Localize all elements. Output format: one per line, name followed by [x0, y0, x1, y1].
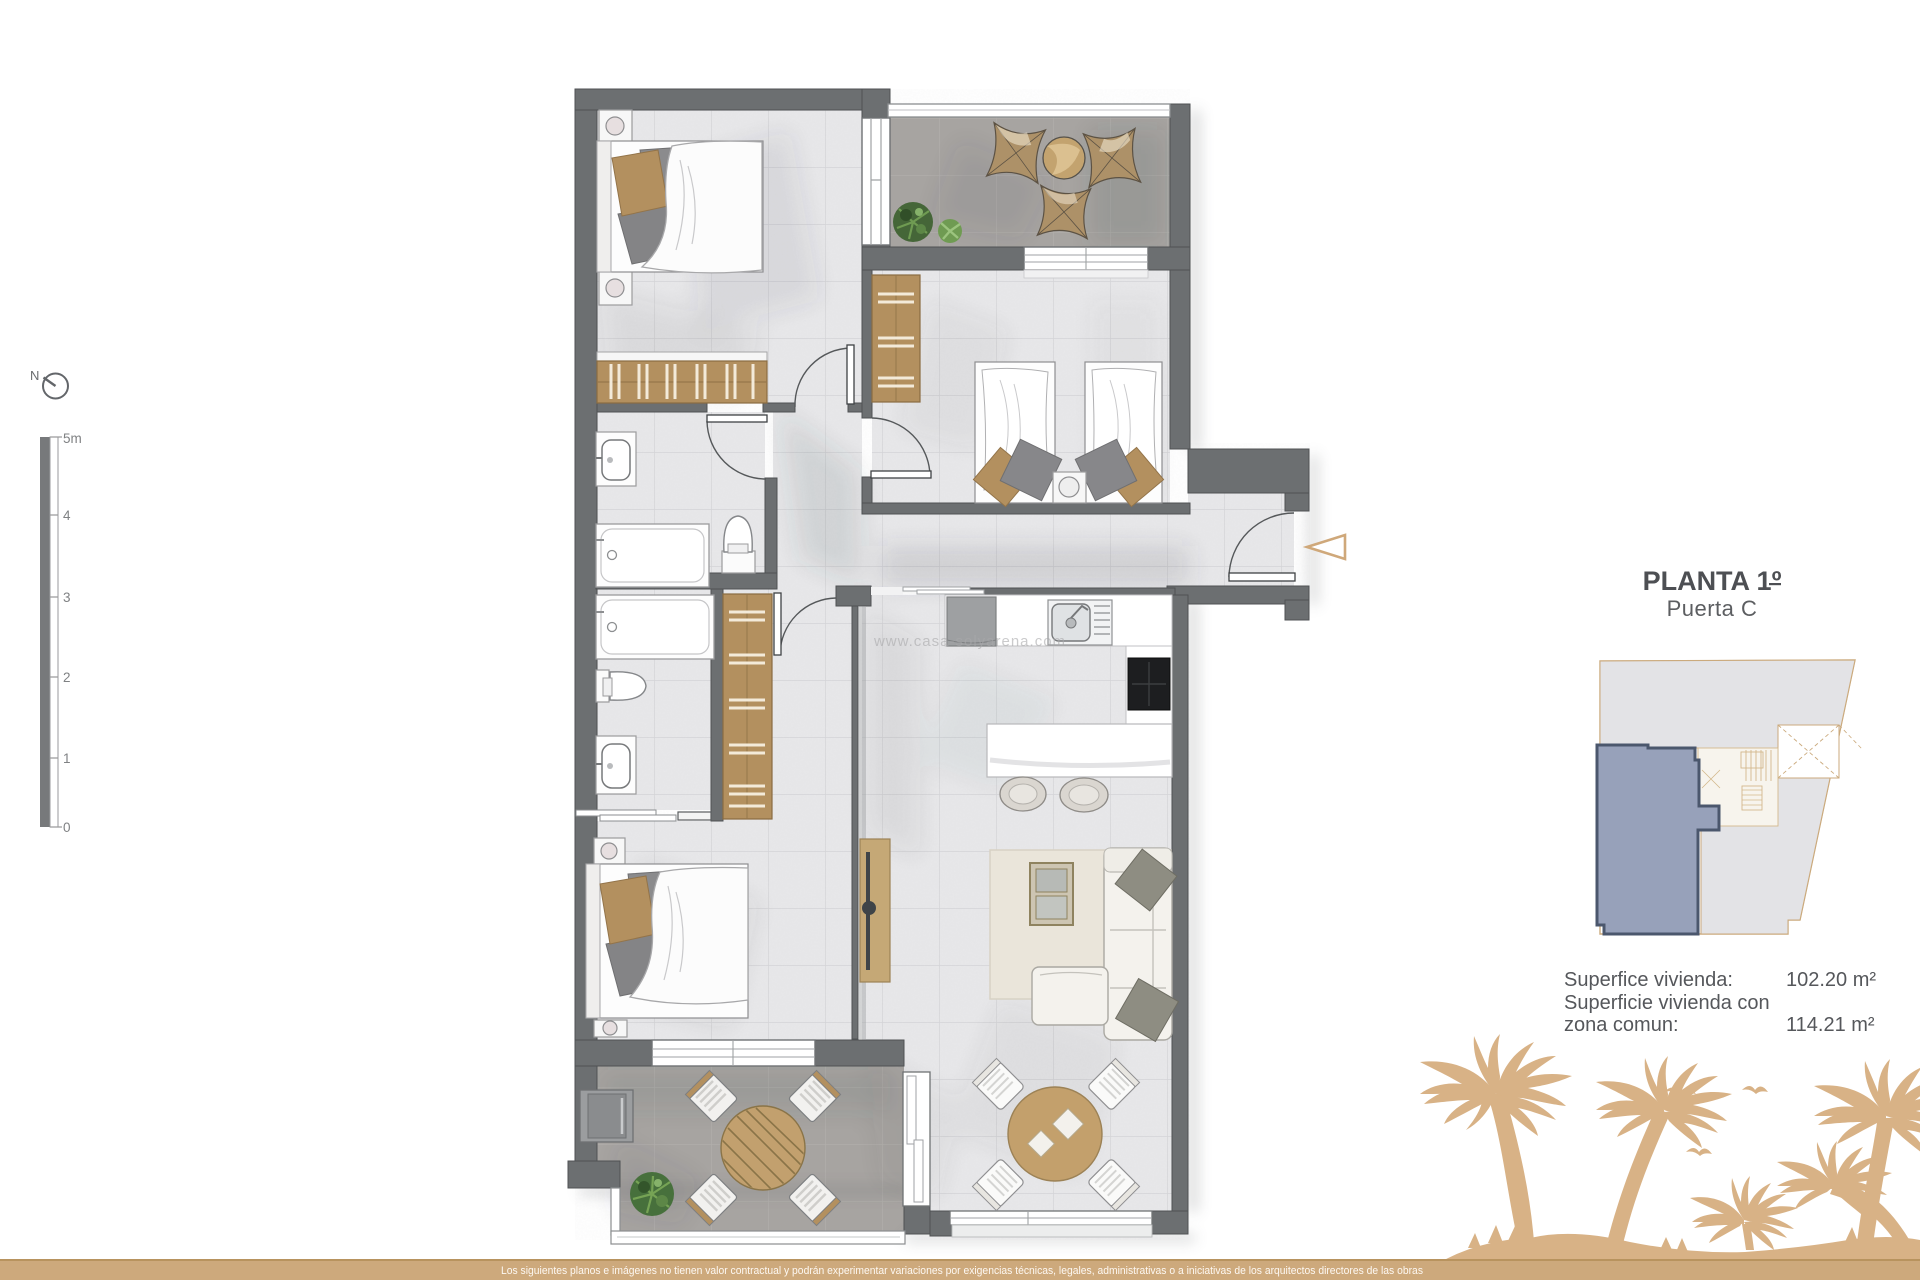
svg-text:3: 3: [63, 590, 71, 605]
svg-text:102.20 m²: 102.20 m²: [1786, 969, 1876, 991]
svg-text:N: N: [30, 368, 39, 383]
svg-text:1: 1: [63, 751, 71, 766]
svg-text:2: 2: [63, 670, 71, 685]
svg-text:0: 0: [63, 820, 71, 835]
svg-text:Superficie vivienda con: Superficie vivienda con: [1564, 992, 1770, 1014]
svg-text:www.casa-solyarena.com: www.casa-solyarena.com: [873, 633, 1066, 650]
svg-text:Los siguientes planos e imágen: Los siguientes planos e imágenes no tien…: [501, 1265, 1423, 1277]
svg-text:Puerta C: Puerta C: [1667, 596, 1758, 621]
svg-text:Superfice vivienda:: Superfice vivienda:: [1564, 969, 1733, 991]
svg-text:5m: 5m: [63, 431, 82, 446]
svg-text:zona comun:: zona comun:: [1564, 1014, 1679, 1036]
svg-text:4: 4: [63, 508, 71, 523]
svg-text:114.21 m²: 114.21 m²: [1786, 1014, 1875, 1036]
svg-text:PLANTA 1º: PLANTA 1º: [1643, 566, 1782, 596]
